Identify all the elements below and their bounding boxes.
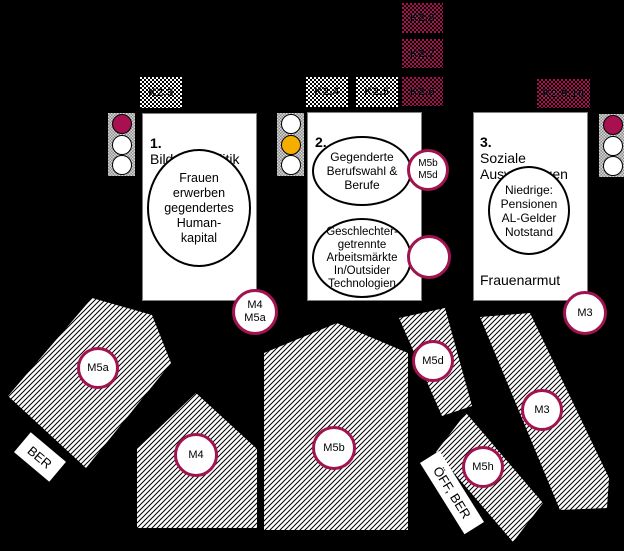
arrow-label-m4: M4	[174, 433, 218, 477]
context-factor-label: K2.6	[410, 86, 435, 98]
context-factor-label: K2.5	[364, 86, 389, 98]
traffic-lamp	[112, 114, 132, 134]
context-factor-box: K2.4	[306, 77, 348, 107]
bubble-pensionen: Niedrige: Pensionen AL-Gelder Notstand	[488, 166, 570, 255]
measure-badge-m5b-m5d: M5b M5d	[407, 149, 449, 191]
measure-badge-m4-m5a: M4 M5a	[232, 289, 278, 335]
gender-policy-traffic-light-diagram: K2.3 K2.4 K2.5 K2.8 K2.7 K2.6 K2.9,10 1.…	[0, 0, 624, 551]
context-factor-box: K2.3	[140, 77, 182, 108]
bubble-arbeitsmaerkte: Geschlechter- getrennte Arbeitsmärkte In…	[312, 218, 412, 298]
bubble-berufswahl: Gegenderte Berufswahl & Berufe	[312, 136, 412, 206]
arrow-label-m3: M3	[521, 389, 563, 431]
context-factor-box: K2.6	[402, 77, 443, 106]
context-factor-box: K2.5	[356, 77, 398, 107]
context-factor-label: K2.4	[314, 86, 339, 98]
traffic-lamp	[603, 156, 623, 176]
context-factor-box: K2.8	[402, 3, 443, 33]
bubble-humankapital: Frauen erwerben gegendertes Human- kapit…	[147, 149, 251, 267]
context-factor-box: K2.9,10	[537, 79, 590, 108]
arrow-label-m5d: M5d	[412, 340, 454, 382]
traffic-lamp	[603, 115, 623, 135]
traffic-light-section-3	[599, 114, 624, 177]
caption-frauenarmut: Frauenarmut	[480, 272, 560, 288]
traffic-lamp	[281, 135, 301, 155]
arrow-label-m5h: M5h	[462, 446, 504, 488]
traffic-light-section-2	[277, 113, 304, 176]
measure-badge-empty	[407, 235, 451, 279]
traffic-lamp	[281, 114, 301, 134]
traffic-lamp	[112, 135, 132, 155]
section-number: 3.	[480, 134, 492, 150]
arrow-label-m5b: M5b	[312, 426, 356, 470]
section-number: 1.	[150, 135, 162, 151]
traffic-lamp	[281, 155, 301, 175]
arrow-label-m5a: M5a	[77, 347, 119, 389]
context-factor-label: K2.7	[410, 48, 435, 60]
traffic-lamp	[112, 155, 132, 175]
context-factor-label: K2.9,10	[542, 88, 584, 100]
traffic-lamp	[603, 136, 623, 156]
measure-badge-m3: M3	[563, 291, 607, 335]
traffic-light-section-1	[108, 113, 135, 176]
context-factor-box: K2.7	[402, 39, 443, 68]
context-factor-label: K2.8	[410, 12, 435, 24]
context-factor-label: K2.3	[148, 87, 173, 99]
